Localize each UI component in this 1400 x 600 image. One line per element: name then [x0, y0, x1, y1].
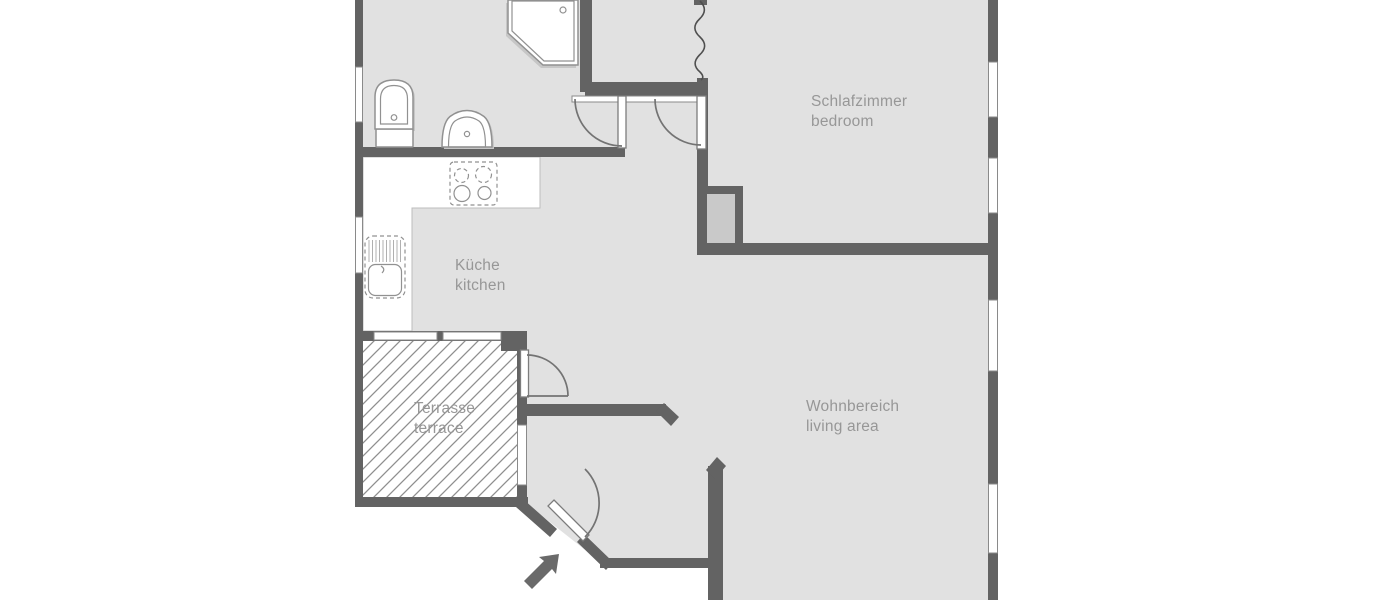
room-label-kitchen-de: Küche: [455, 256, 506, 276]
floor-plan-drawing: [0, 0, 1400, 600]
room-label-bedroom-en: bedroom: [811, 112, 907, 132]
room-label-living-area-en: living area: [806, 417, 899, 437]
window-terrace-living: [518, 425, 527, 485]
wall-hall-top: [585, 82, 703, 96]
window-kitchen-terrace-1: [374, 332, 437, 340]
room-label-living-area-de: Wohnbereich: [806, 397, 899, 417]
floor-bedroom-living: [708, 0, 988, 600]
small-room-door-leaf: [697, 96, 706, 149]
wall-bedroom-bottom: [697, 243, 997, 255]
room-label-terrace-en: terrace: [414, 419, 475, 439]
room-label-kitchen: Küche kitchen: [455, 256, 506, 296]
wall-bathroom-right: [580, 0, 592, 92]
wall-living-divider: [527, 404, 666, 416]
bathroom-door-leaf: [618, 96, 626, 148]
room-label-terrace: Terrasse terrace: [414, 399, 475, 439]
window-kitchen-terrace-2: [443, 332, 501, 340]
outside-area-left: [355, 507, 527, 600]
toilet-tank: [376, 129, 413, 147]
room-label-living-area: Wohnbereich living area: [806, 397, 899, 437]
wall-terrace-bottom: [355, 497, 528, 507]
window-living-right-1: [989, 300, 998, 371]
wall-entrance-bottom: [600, 558, 723, 568]
door-threshold-hall: [572, 96, 698, 102]
floor-small-room: [592, 0, 708, 84]
window-bedroom-right-1: [989, 62, 998, 117]
room-label-bedroom: Schlafzimmer bedroom: [811, 92, 907, 132]
chimney-shaft: [707, 194, 735, 243]
terrace-door-leaf: [521, 350, 529, 397]
wall-hall-living: [708, 466, 723, 600]
room-label-terrace-de: Terrasse: [414, 399, 475, 419]
window-bathroom-left: [356, 67, 363, 122]
washbasin: [442, 111, 492, 148]
floor-plan-canvas: Schlafzimmer bedroom Küche kitchen Wohnb…: [0, 0, 1400, 600]
room-label-bedroom-de: Schlafzimmer: [811, 92, 907, 112]
window-kitchen-left: [356, 217, 363, 273]
window-bedroom-right-2: [989, 158, 998, 213]
window-living-right-2: [989, 484, 998, 553]
room-label-kitchen-en: kitchen: [455, 276, 506, 296]
